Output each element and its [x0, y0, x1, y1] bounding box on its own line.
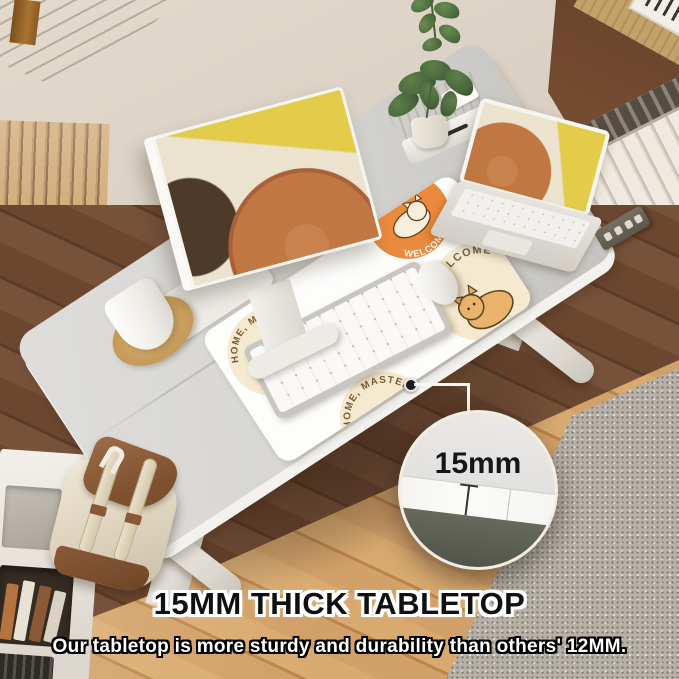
subheadline: Our tabletop is more sturdy and durabili… — [0, 636, 679, 658]
controller-display — [633, 214, 643, 224]
edge-seam — [506, 489, 511, 520]
product-photo-stage: HOME, MASTER WELCOME WELCOME — [0, 0, 679, 679]
thickness-label: 15mm — [401, 447, 555, 481]
controller-memory-button — [624, 219, 634, 229]
headline: 15MM THICK TABLETOP — [0, 586, 679, 622]
controller-down-button — [613, 225, 623, 235]
hanging-plant — [392, 0, 482, 60]
magnifier-contents — [398, 410, 558, 570]
shelf-bracket — [9, 0, 40, 45]
callout-line-horizontal — [414, 383, 470, 386]
measurement-line — [465, 484, 471, 515]
potted-plant — [384, 56, 484, 152]
controller-up-button — [603, 231, 613, 241]
thickness-magnifier-circle: 15mm — [398, 410, 558, 570]
